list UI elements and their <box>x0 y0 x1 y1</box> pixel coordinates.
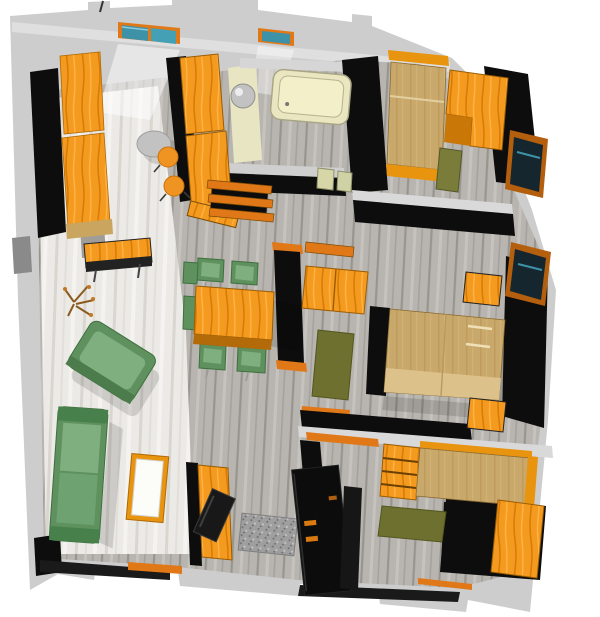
floorplan-canvas <box>0 0 600 617</box>
dining-chair-seat <box>235 265 254 281</box>
bed1-chair <box>436 148 462 192</box>
dining-chair-seat <box>203 348 222 364</box>
washbasin-sphere <box>231 84 255 108</box>
kitchen-wall-cabinet-2 <box>62 133 110 227</box>
bed2-rug <box>312 330 354 400</box>
kitchen-stool-2 <box>164 176 184 196</box>
right-window-1-glass <box>510 137 543 192</box>
bedroom3-dark-strip <box>441 502 500 572</box>
bed2-nightstand-1 <box>463 272 502 306</box>
dining-chair-seat <box>201 262 220 278</box>
hall-glass-panel-1 <box>317 168 334 190</box>
right-window-2-glass <box>510 249 546 300</box>
dining-table <box>194 286 274 340</box>
doormat <box>238 513 298 556</box>
washbasin-highlight <box>235 88 243 96</box>
dining-chair <box>183 262 198 284</box>
bed3-wardrobe <box>491 500 544 578</box>
dining-chair-seat <box>241 351 261 367</box>
kitchen-wall-cabinet-1 <box>60 52 104 134</box>
coffee-table-top <box>132 459 164 517</box>
left-wall-recess <box>12 236 32 274</box>
door-hinge <box>329 496 337 501</box>
hall-glass-panel-2 <box>337 171 352 192</box>
bathtub-basin <box>277 75 344 117</box>
bed1-mattress <box>387 62 446 170</box>
bed1-desk-side <box>444 114 472 146</box>
green-sofa-cushion-1 <box>60 423 101 474</box>
green-sofa-cushion-2 <box>56 473 97 526</box>
kitchen-tall-unit-1 <box>180 54 224 134</box>
bed3-rug <box>378 506 446 542</box>
bed3-mattress <box>416 448 530 506</box>
floorplan-rendering <box>0 0 600 617</box>
kitchen-stool-1 <box>158 147 178 167</box>
dining-table-shadow <box>270 300 302 352</box>
bathroom-cream-wall <box>228 64 262 163</box>
bed2-nightstand-2 <box>467 398 506 432</box>
